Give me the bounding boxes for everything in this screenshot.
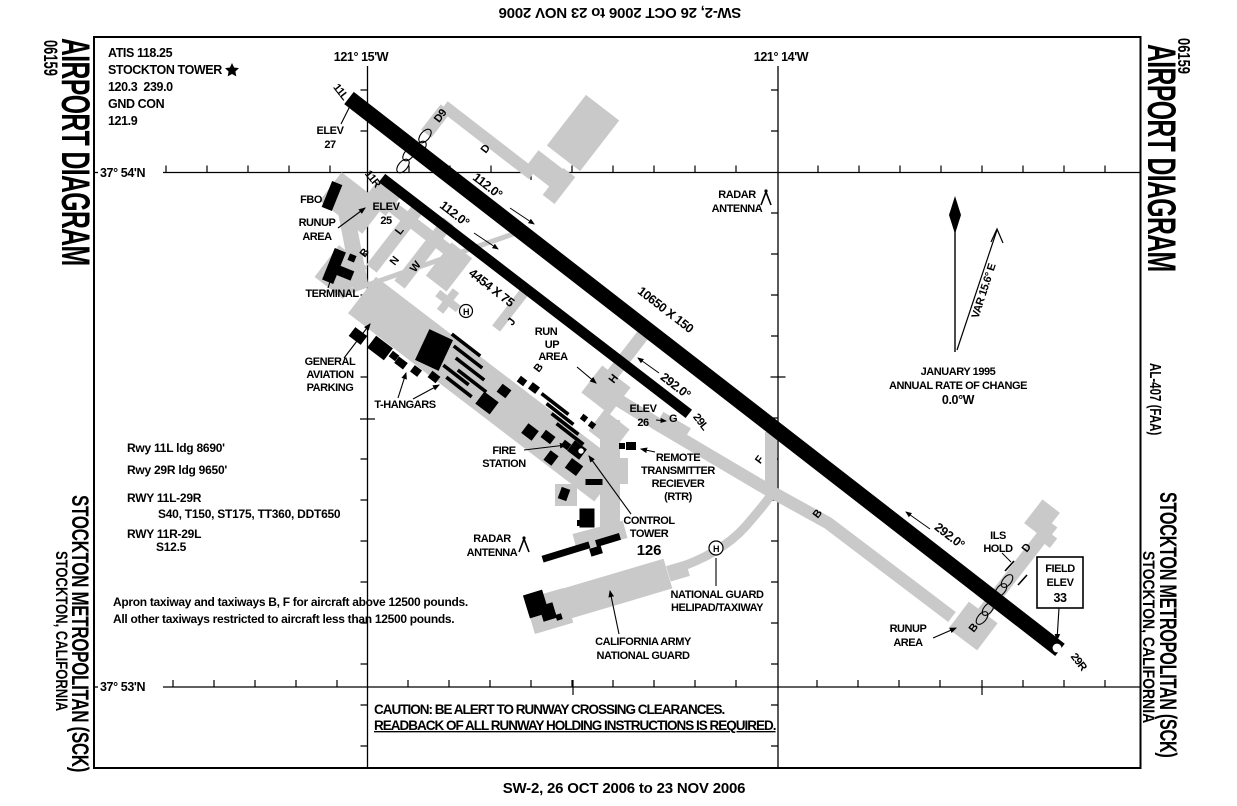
svg-text:STOCKTON METROPOLITAN (SCK): STOCKTON METROPOLITAN (SCK) — [1154, 492, 1181, 757]
svg-text:HELIPAD/TAXIWAY: HELIPAD/TAXIWAY — [671, 602, 764, 614]
svg-text:Rwy 11L ldg 8690': Rwy 11L ldg 8690' — [127, 441, 225, 455]
svg-text:UP: UP — [545, 339, 559, 351]
svg-text:Apron taxiway and taxiways B,: Apron taxiway and taxiways B, F for airc… — [113, 595, 468, 609]
svg-text:TRANSMITTER: TRANSMITTER — [641, 465, 715, 477]
svg-text:STATION: STATION — [482, 458, 526, 470]
svg-text:S40, T150, ST175, TT360, DDT65: S40, T150, ST175, TT360, DDT650 — [158, 507, 341, 521]
svg-text:ATIS 118.25: ATIS 118.25 — [108, 46, 173, 60]
svg-text:RUNUP: RUNUP — [299, 217, 336, 229]
svg-text:HOLD: HOLD — [983, 543, 1013, 555]
svg-text:RADAR: RADAR — [718, 189, 756, 201]
svg-text:PARKING: PARKING — [307, 382, 354, 394]
svg-text:120.3 239.0: 120.3 239.0 — [108, 80, 173, 94]
svg-text:AL-407 (FAA): AL-407 (FAA) — [1147, 363, 1165, 435]
svg-text:ILS: ILS — [990, 530, 1006, 542]
svg-text:33: 33 — [1053, 591, 1067, 605]
svg-text:26: 26 — [637, 417, 649, 429]
svg-text:REMOTE: REMOTE — [656, 452, 700, 464]
svg-text:CALIFORNIA ARMY: CALIFORNIA ARMY — [595, 636, 692, 648]
svg-text:SW-2, 26 OCT 2006 to 23 NOV 20: SW-2, 26 OCT 2006 to 23 NOV 2006 — [499, 4, 742, 21]
svg-text:JANUARY 1995: JANUARY 1995 — [921, 366, 996, 378]
svg-text:NATIONAL GUARD: NATIONAL GUARD — [597, 650, 690, 662]
svg-text:ANNUAL RATE OF CHANGE: ANNUAL RATE OF CHANGE — [889, 380, 1027, 392]
svg-text:AIRPORT DIAGRAM: AIRPORT DIAGRAM — [1138, 44, 1182, 272]
svg-text:RUNUP: RUNUP — [890, 623, 927, 635]
svg-text:ELEV: ELEV — [630, 403, 658, 415]
svg-text:TOWER: TOWER — [630, 528, 669, 540]
svg-text:Rwy 29R ldg 9650': Rwy 29R ldg 9650' — [127, 463, 227, 477]
svg-text:121° 14'W: 121° 14'W — [754, 50, 809, 64]
svg-text:RADAR: RADAR — [473, 533, 511, 545]
svg-text:TERMINAL: TERMINAL — [305, 288, 359, 300]
svg-text:ELEV: ELEV — [1047, 577, 1075, 589]
svg-text:RECIEVER: RECIEVER — [652, 478, 705, 490]
svg-text:READBACK OF ALL RUNWAY HOLDING: READBACK OF ALL RUNWAY HOLDING INSTRUCTI… — [374, 718, 776, 733]
svg-text:AREA: AREA — [302, 231, 332, 243]
svg-text:27: 27 — [324, 139, 336, 151]
svg-text:37° 54'N: 37° 54'N — [100, 166, 145, 180]
svg-text:S12.5: S12.5 — [156, 540, 187, 554]
svg-text:GENERAL: GENERAL — [305, 356, 356, 368]
svg-text:ELEV: ELEV — [317, 125, 345, 137]
svg-text:ANTENNA: ANTENNA — [712, 203, 763, 215]
svg-text:FIRE: FIRE — [492, 445, 515, 457]
svg-text:FIELD: FIELD — [1045, 563, 1075, 575]
svg-text:GND CON: GND CON — [108, 97, 165, 111]
svg-text:(RTR): (RTR) — [664, 491, 692, 503]
svg-text:STOCKTON METROPOLITAN (SCK): STOCKTON METROPOLITAN (SCK) — [66, 495, 93, 772]
svg-text:RUN: RUN — [535, 326, 558, 338]
svg-text:NATIONAL GUARD: NATIONAL GUARD — [671, 589, 764, 601]
svg-text:37° 53'N: 37° 53'N — [100, 680, 145, 694]
svg-text:126: 126 — [637, 542, 661, 559]
svg-text:AVIATION: AVIATION — [306, 369, 354, 381]
svg-text:SW-2, 26 OCT 2006 to 23 NOV 20: SW-2, 26 OCT 2006 to 23 NOV 2006 — [503, 780, 746, 797]
svg-text:RWY 11R-29L: RWY 11R-29L — [127, 527, 201, 541]
svg-text:121° 15'W: 121° 15'W — [334, 50, 389, 64]
svg-text:H: H — [713, 544, 719, 554]
svg-text:H: H — [463, 307, 469, 317]
svg-text:CAUTION: BE ALERT TO RUNWAY C: CAUTION: BE ALERT TO RUNWAY CROSSING CLE… — [374, 702, 725, 717]
svg-text:All other taxiways restricted: All other taxiways restricted to aircraf… — [113, 612, 454, 626]
svg-text:RWY 11L-29R: RWY 11L-29R — [127, 491, 202, 505]
svg-text:ANTENNA: ANTENNA — [467, 547, 518, 559]
svg-text:STOCKTON TOWER: STOCKTON TOWER — [108, 63, 222, 77]
svg-text:AIRPORT DIAGRAM: AIRPORT DIAGRAM — [52, 38, 96, 266]
svg-text:AREA: AREA — [893, 637, 923, 649]
svg-text:G: G — [669, 413, 677, 425]
svg-text:25: 25 — [380, 215, 392, 227]
svg-text:FBO: FBO — [300, 194, 323, 206]
svg-text:AREA: AREA — [538, 351, 568, 363]
svg-text:T-HANGARS: T-HANGARS — [374, 399, 435, 411]
svg-text:121.9: 121.9 — [108, 114, 138, 128]
svg-text:CONTROL: CONTROL — [623, 515, 675, 527]
svg-text:0.0°W: 0.0°W — [942, 393, 975, 407]
svg-text:ELEV: ELEV — [373, 201, 401, 213]
